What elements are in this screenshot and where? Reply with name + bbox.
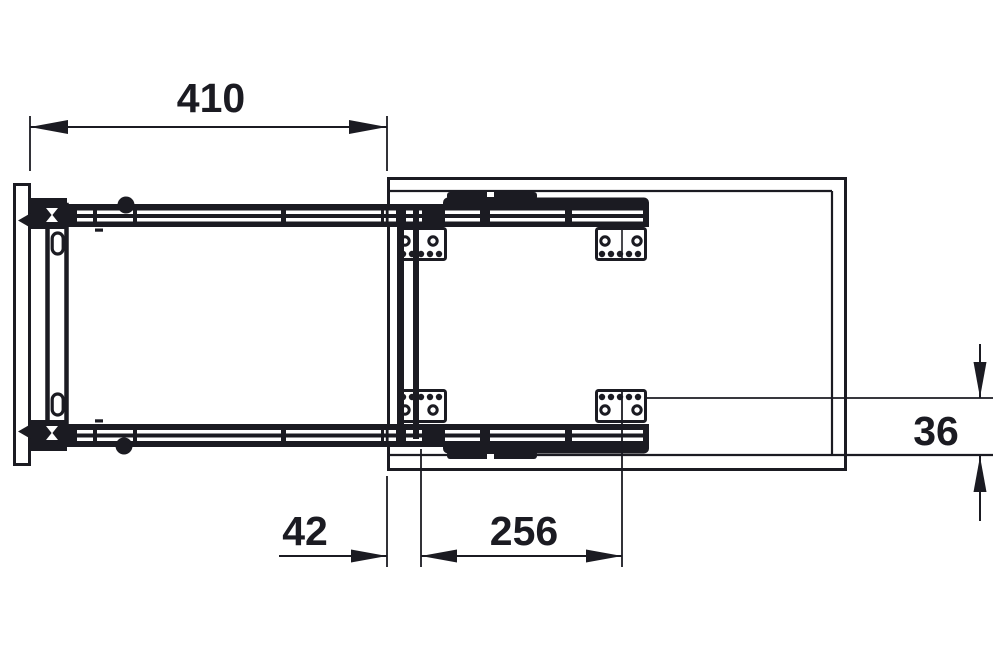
screw-hole-small (635, 394, 641, 400)
arrowhead-down (974, 362, 987, 398)
rail-slit (97, 430, 133, 434)
rail-slit (77, 438, 93, 442)
screw-hole-small (599, 251, 605, 257)
top-rail-rivet (95, 229, 103, 232)
bottom-slide-rail (30, 419, 649, 459)
rail-slit (572, 218, 643, 222)
rail-slit (445, 438, 480, 442)
screw-hole (633, 406, 641, 414)
mounting-slot-bottom (52, 394, 63, 415)
screw-hole (601, 406, 609, 414)
dimension-36: 36 (647, 344, 993, 521)
arrowhead-right (349, 120, 387, 134)
mounting-brackets (399, 229, 646, 422)
dimension-42-256: 42 256 (279, 230, 622, 567)
screw-hole-small (427, 251, 433, 257)
screw-hole-small (626, 394, 632, 400)
cabinet-edge-through-rail (386, 206, 389, 225)
dimension-36-label: 36 (913, 408, 959, 454)
screw-hole-small (635, 251, 641, 257)
arrowhead-up (974, 457, 987, 493)
bottom-rail-stop-knob (116, 438, 133, 455)
rail-slit (77, 430, 93, 434)
door-bracket-top (30, 198, 67, 229)
rail-slit (445, 430, 480, 434)
rail-slit (77, 218, 93, 222)
rail-slit (77, 211, 93, 215)
rail-slit (572, 438, 643, 442)
dimension-410: 410 (30, 75, 387, 171)
rail-slit (445, 218, 480, 222)
screw-hole-small (626, 251, 632, 257)
top-rail-hump-notch (487, 192, 494, 197)
mounting-slot-top (52, 233, 63, 254)
rail-slit (490, 438, 565, 442)
rail-slit (137, 211, 281, 215)
technical-drawing-canvas: 410 42 256 36 (0, 0, 1000, 651)
rail-slit (286, 218, 381, 222)
rail-slit (137, 218, 281, 222)
arrowhead-right (586, 550, 622, 563)
door-bracket-top-tab (18, 213, 31, 228)
rail-slit (490, 430, 565, 434)
screw-hole-small (436, 251, 442, 257)
screw-hole-small (427, 394, 433, 400)
rail-slit (286, 430, 381, 434)
dimension-410-label: 410 (177, 75, 245, 121)
screw-hole (401, 237, 409, 245)
screw-hole (429, 406, 437, 414)
frame-bar-right-line (413, 209, 419, 439)
pullout-slide-drawing: 410 42 256 36 (0, 0, 1000, 651)
dimension-256-label: 256 (490, 508, 558, 554)
dimension-42-label: 42 (282, 508, 328, 554)
rail-slit (572, 430, 643, 434)
bottom-rail-hump-notch (487, 454, 494, 459)
rail-slit (137, 438, 281, 442)
rail-slit (97, 218, 133, 222)
screw-hole (601, 237, 609, 245)
front-door-panel (15, 185, 30, 465)
screw-hole-small (436, 394, 442, 400)
screw-hole (633, 237, 641, 245)
arrowhead-left (421, 550, 457, 563)
screw-hole (401, 406, 409, 414)
bottom-rail-rivet (95, 419, 103, 422)
arrowhead-right (351, 550, 387, 563)
top-rail-stop-knob (118, 197, 135, 214)
screw-hole-small (409, 394, 415, 400)
rail-slit (137, 430, 281, 434)
screw-hole-small (418, 251, 424, 257)
screw-hole-small (400, 251, 406, 257)
top-slide-rail (30, 192, 649, 232)
cabinet-edge-through-rail (386, 426, 389, 445)
screw-hole-small (599, 394, 605, 400)
front-frame-bar (48, 205, 67, 444)
door-bracket-bottom (30, 420, 67, 451)
screw-hole-small (608, 251, 614, 257)
screw-hole-small (409, 251, 415, 257)
door-bracket-bottom-tab (18, 424, 31, 439)
rail-slit (572, 211, 643, 215)
bracket-screw-holes (400, 237, 641, 414)
door-connector-blocks (18, 198, 67, 451)
rail-slit (286, 438, 381, 442)
rail-slit (490, 211, 565, 215)
screw-hole-small (400, 394, 406, 400)
rail-slit (286, 211, 381, 215)
rail-slit (445, 211, 480, 215)
screw-hole-small (418, 394, 424, 400)
screw-hole-small (608, 394, 614, 400)
arrowhead-left (30, 120, 68, 134)
screw-hole (429, 237, 437, 245)
rail-slit (490, 218, 565, 222)
